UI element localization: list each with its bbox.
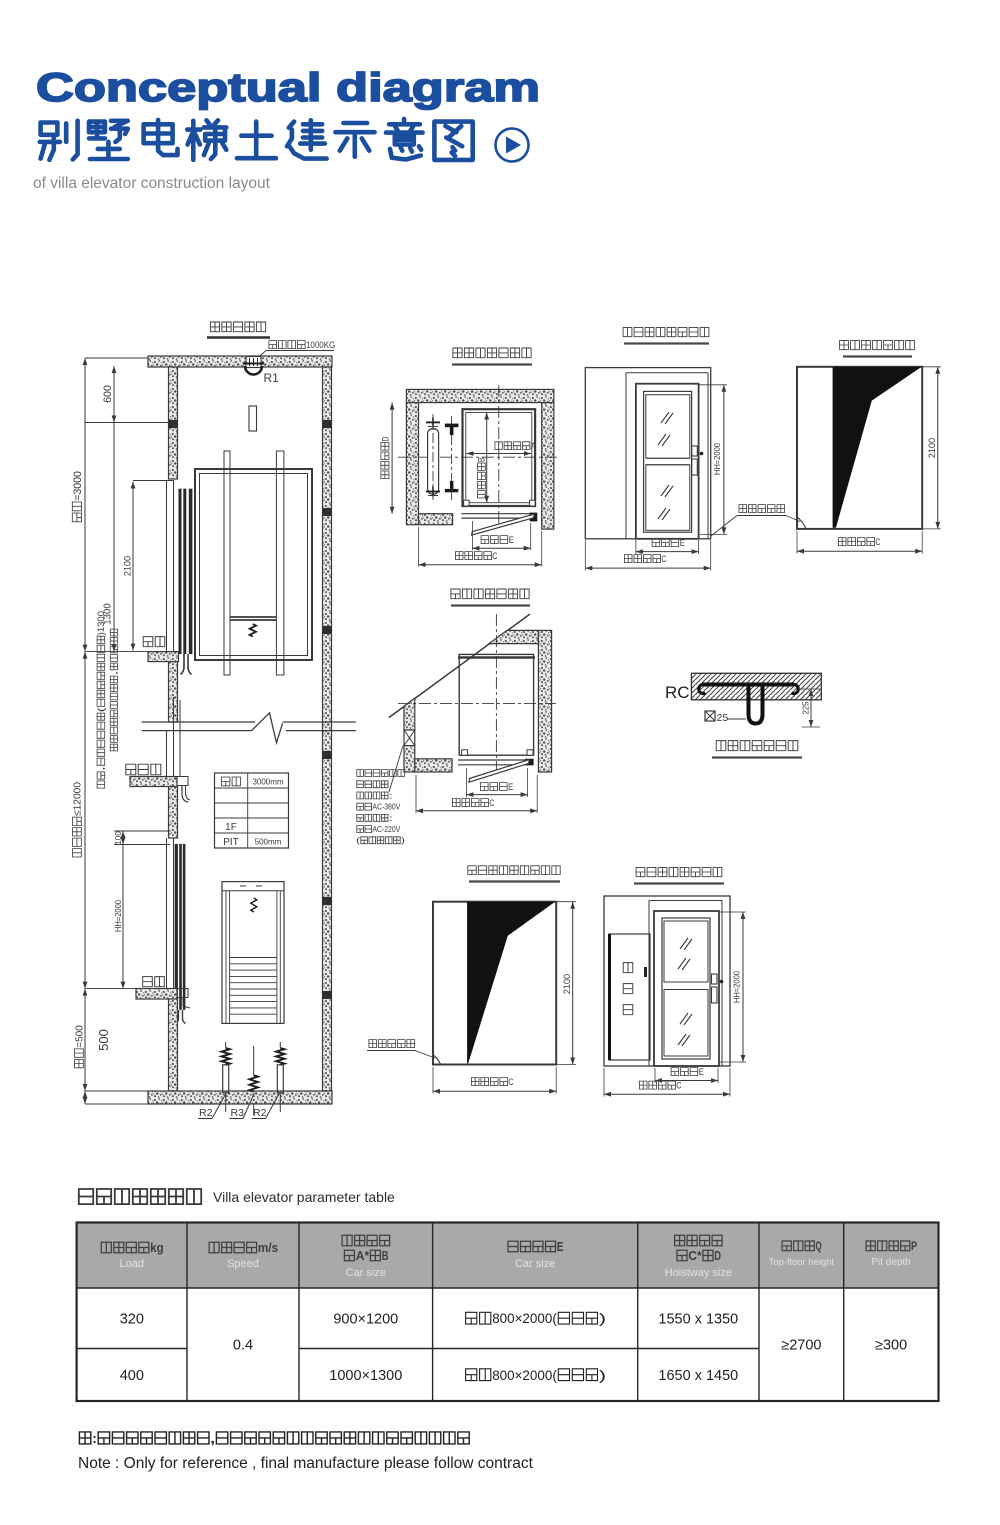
svg-text:E: E — [509, 535, 514, 546]
svg-text:C: C — [489, 798, 494, 809]
svg-text:HH=2000: HH=2000 — [113, 900, 123, 932]
svg-text:Q: Q — [816, 1241, 822, 1253]
svg-text:900×1200: 900×1200 — [333, 1311, 398, 1327]
svg-text:C: C — [508, 1077, 513, 1088]
svg-text:,: , — [109, 671, 119, 676]
svg-text:1650 x 1450: 1650 x 1450 — [658, 1368, 738, 1384]
svg-text:≤12000: ≤12000 — [72, 782, 84, 816]
svg-text::: : — [389, 814, 393, 823]
svg-text:3000mm: 3000mm — [252, 778, 283, 787]
svg-text:P: P — [911, 1241, 917, 1253]
svg-text:Load: Load — [120, 1258, 144, 1270]
svg-text:Note : Only for reference , fi: Note : Only for reference , final manufa… — [78, 1455, 534, 1472]
svg-text:E: E — [508, 782, 513, 793]
svg-text:≥300: ≥300 — [875, 1338, 907, 1354]
svg-text:)1300: )1300 — [96, 611, 106, 635]
svg-text:Hoistway size: Hoistway size — [665, 1267, 732, 1279]
svg-text:B: B — [477, 457, 487, 462]
svg-text:800×2000(: 800×2000( — [492, 1310, 557, 1326]
svg-text:320: 320 — [120, 1311, 144, 1327]
svg-text:Pit depth: Pit depth — [871, 1257, 910, 1268]
svg-text:2100: 2100 — [122, 556, 133, 577]
svg-text:R2: R2 — [199, 1107, 213, 1119]
svg-text:1000KG: 1000KG — [306, 340, 335, 351]
svg-text:A*: A* — [356, 1249, 370, 1263]
svg-text:600: 600 — [102, 385, 114, 403]
svg-text:,: , — [96, 766, 106, 771]
svg-text:C: C — [676, 1081, 681, 1092]
svg-text:of villa elevator construction: of villa elevator construction layout — [33, 175, 271, 192]
svg-text:25: 25 — [717, 712, 729, 724]
svg-text:): ) — [401, 836, 405, 845]
svg-text::: : — [92, 1431, 97, 1447]
svg-text:R2: R2 — [253, 1107, 267, 1119]
svg-text:PIT: PIT — [223, 837, 239, 848]
svg-text:=3000: =3000 — [72, 471, 84, 501]
svg-text:500: 500 — [96, 1029, 111, 1051]
svg-text:Villa elevator parameter table: Villa elevator parameter table — [213, 1189, 395, 1205]
svg-text:(: ( — [356, 836, 360, 845]
svg-text:A: A — [531, 441, 537, 451]
svg-text:(: ( — [96, 707, 106, 712]
svg-text:2100: 2100 — [562, 974, 573, 995]
svg-text:kg: kg — [150, 1241, 164, 1255]
svg-text:=500: =500 — [74, 1025, 86, 1048]
svg-text:RC: RC — [665, 683, 690, 702]
svg-text:1000×1300: 1000×1300 — [329, 1368, 402, 1384]
svg-text:AC-380V: AC-380V — [372, 803, 400, 812]
svg-text:D: D — [714, 1249, 721, 1263]
svg-text:E: E — [699, 1067, 704, 1078]
svg-text:400: 400 — [120, 1368, 144, 1384]
svg-text:AC-220V: AC-220V — [372, 825, 400, 834]
svg-text:C*: C* — [688, 1249, 702, 1263]
svg-text:≥2700: ≥2700 — [781, 1338, 821, 1354]
svg-text:E: E — [680, 538, 685, 549]
svg-text:225: 225 — [801, 701, 810, 715]
svg-text:HH=2000: HH=2000 — [732, 971, 742, 1003]
svg-text:C: C — [875, 537, 880, 548]
svg-text:500mm: 500mm — [255, 838, 282, 847]
svg-text:): ) — [599, 1310, 606, 1326]
svg-text:Top-floor height: Top-floor height — [769, 1257, 835, 1268]
svg-text:1550 x 1350: 1550 x 1350 — [658, 1311, 738, 1327]
svg-text:): ) — [599, 1367, 606, 1383]
svg-text:Car size: Car size — [346, 1267, 386, 1279]
svg-text:D: D — [380, 436, 391, 441]
svg-text:Speed: Speed — [227, 1258, 259, 1270]
svg-text:R1: R1 — [264, 371, 280, 385]
svg-text:100: 100 — [113, 831, 123, 845]
svg-text:B: B — [382, 1249, 389, 1263]
svg-text:1F: 1F — [225, 822, 237, 833]
svg-text:800×2000(: 800×2000( — [492, 1367, 557, 1383]
svg-text:2100: 2100 — [927, 438, 938, 459]
svg-text:E: E — [557, 1240, 564, 1254]
svg-text:C: C — [492, 551, 497, 562]
svg-text:HH=2000: HH=2000 — [712, 443, 722, 475]
svg-text:0.4: 0.4 — [233, 1338, 253, 1354]
svg-text:R3: R3 — [231, 1107, 245, 1119]
svg-text:,: , — [210, 1431, 215, 1447]
svg-text:m/s: m/s — [258, 1241, 278, 1255]
svg-text::: : — [389, 791, 393, 800]
svg-text:C: C — [661, 554, 666, 565]
svg-text:Conceptual diagram: Conceptual diagram — [36, 66, 540, 110]
svg-text:Car size: Car size — [515, 1258, 555, 1270]
